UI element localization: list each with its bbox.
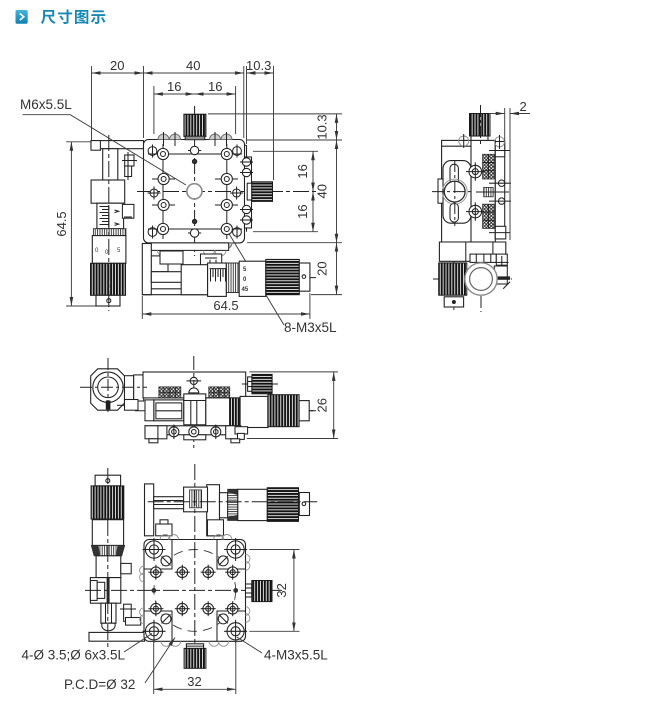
svg-text:64.5: 64.5 (54, 211, 69, 236)
svg-text:8-M3x5L: 8-M3x5L (284, 320, 337, 335)
svg-text:26: 26 (315, 398, 330, 412)
svg-text:64.5: 64.5 (213, 298, 238, 313)
svg-text:4-M3x5.5L: 4-M3x5.5L (264, 648, 328, 663)
svg-text:4-Ø 3.5;Ø 6x3.5L: 4-Ø 3.5;Ø 6x3.5L (22, 648, 126, 663)
svg-text:16: 16 (208, 79, 222, 94)
svg-text:16: 16 (295, 164, 310, 178)
svg-text:40: 40 (186, 58, 200, 73)
svg-text:40: 40 (315, 184, 330, 198)
svg-text:P.C.D=Ø 32: P.C.D=Ø 32 (64, 677, 135, 692)
svg-text:16: 16 (167, 79, 181, 94)
svg-text:10.3: 10.3 (246, 58, 271, 73)
svg-text:2: 2 (520, 99, 527, 114)
svg-text:M6x5.5L: M6x5.5L (20, 97, 72, 112)
svg-text:32: 32 (187, 674, 201, 689)
svg-text:16: 16 (295, 204, 310, 218)
svg-text:20: 20 (315, 261, 330, 275)
svg-text:32: 32 (274, 583, 289, 597)
svg-text:10.3: 10.3 (315, 114, 330, 139)
svg-text:45: 45 (242, 287, 249, 293)
svg-text:20: 20 (110, 58, 124, 73)
